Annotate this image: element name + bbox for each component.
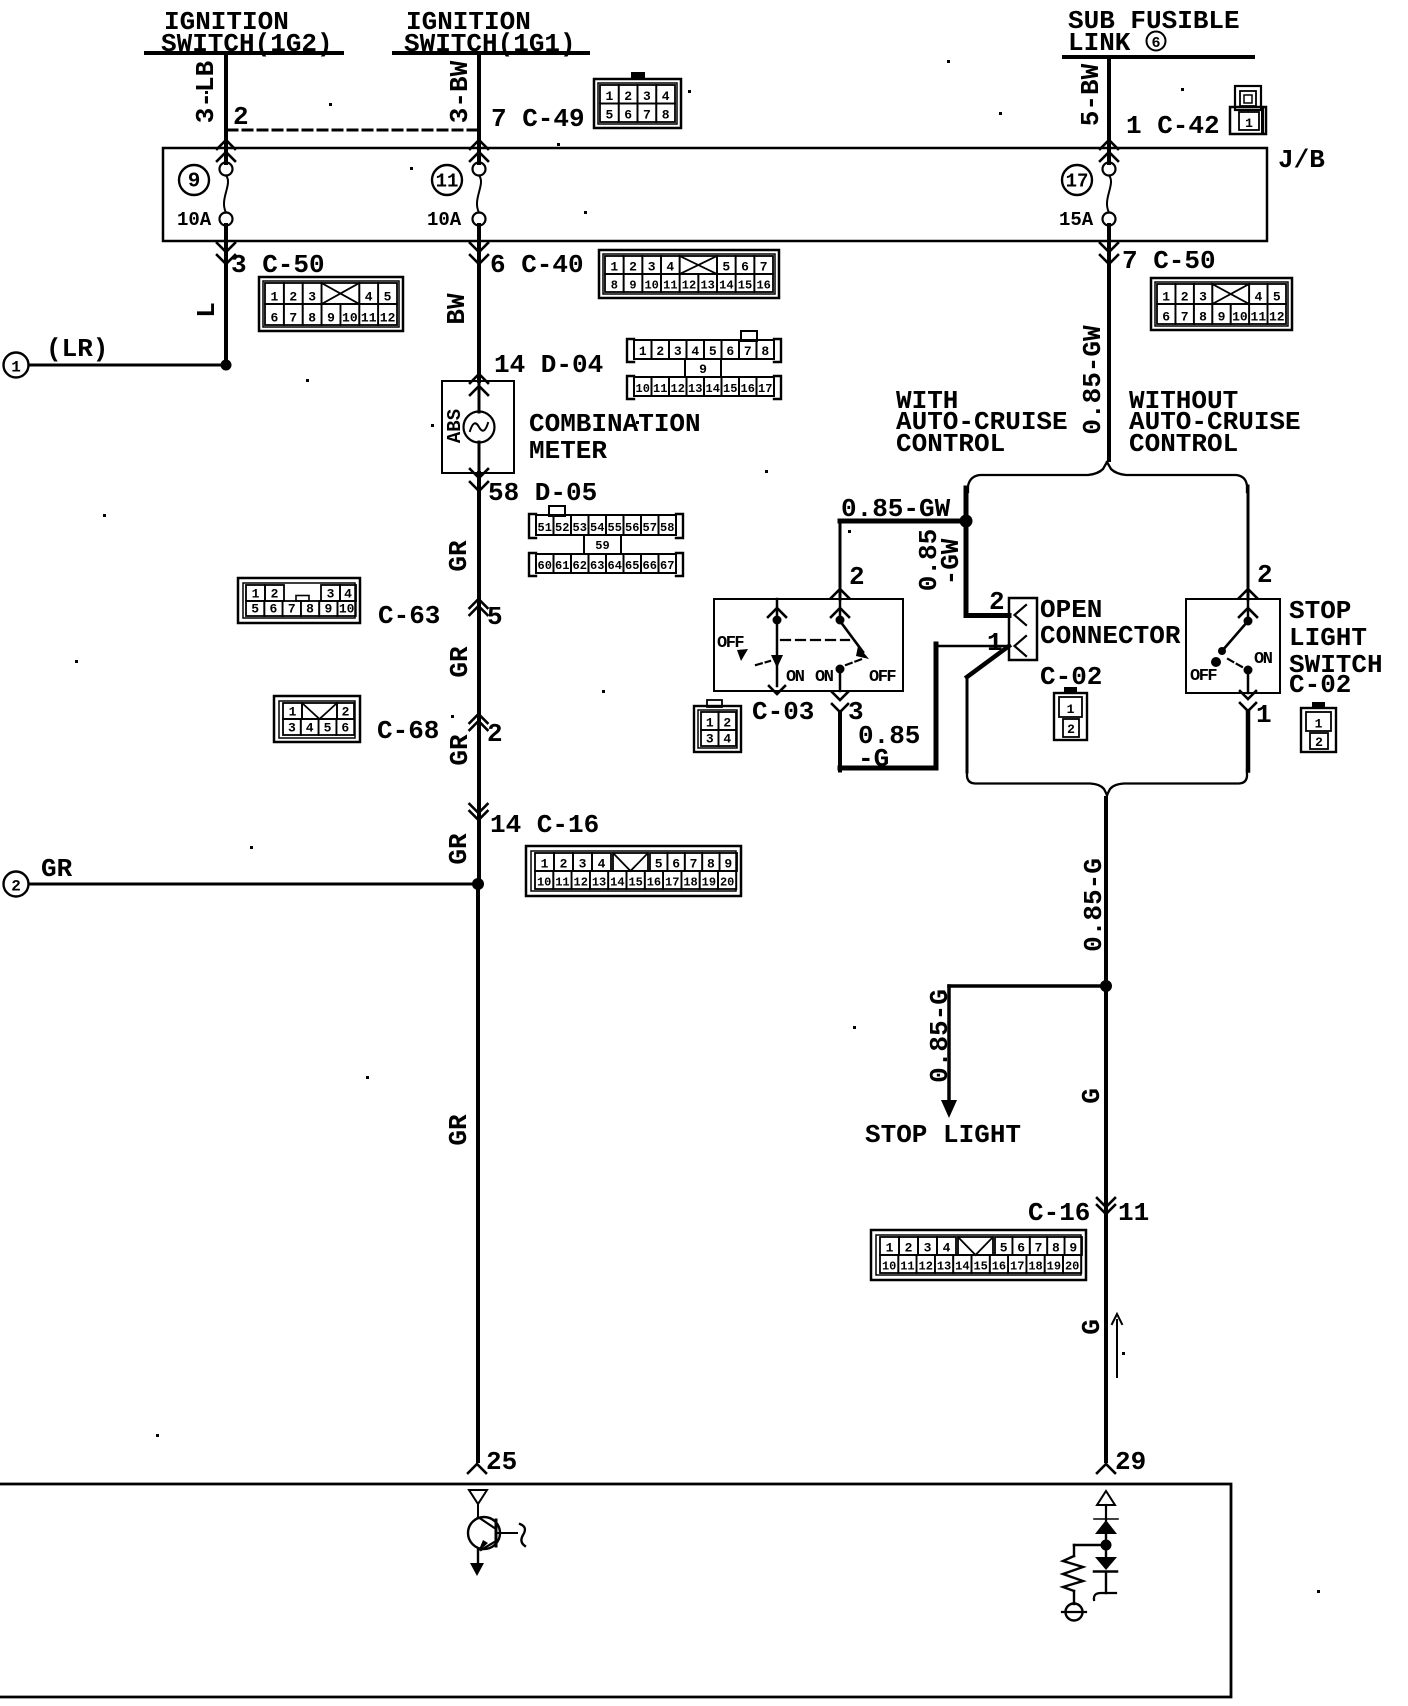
svg-text:19: 19: [702, 876, 716, 890]
svg-text:J/B: J/B: [1278, 145, 1325, 175]
svg-text:4: 4: [344, 587, 352, 602]
svg-text:10: 10: [342, 311, 358, 326]
svg-text:65: 65: [625, 559, 639, 573]
svg-text:ON: ON: [1254, 650, 1273, 669]
svg-text:8: 8: [611, 279, 618, 293]
svg-text:8: 8: [761, 344, 769, 359]
svg-text:17: 17: [665, 876, 679, 890]
svg-text:(LR): (LR): [46, 334, 108, 364]
svg-text:12: 12: [574, 876, 588, 890]
svg-text:7 C-50: 7 C-50: [1122, 246, 1216, 276]
svg-text:9: 9: [699, 362, 707, 377]
svg-text:52: 52: [555, 521, 569, 535]
svg-text:7: 7: [289, 311, 297, 326]
svg-text:GR: GR: [41, 854, 73, 884]
svg-text:2: 2: [11, 878, 21, 896]
svg-text:2: 2: [624, 89, 632, 104]
svg-text:16: 16: [647, 876, 661, 890]
svg-text:14 D-04: 14 D-04: [494, 350, 603, 380]
svg-text:1: 1: [1067, 702, 1075, 717]
svg-text:51: 51: [538, 521, 552, 535]
svg-text:10: 10: [537, 876, 551, 890]
svg-text:9: 9: [327, 311, 335, 326]
svg-text:2: 2: [989, 587, 1005, 617]
svg-text:3: 3: [308, 290, 316, 305]
svg-text:2: 2: [289, 290, 297, 305]
svg-text:5: 5: [251, 602, 259, 617]
svg-text:9: 9: [629, 279, 636, 293]
svg-text:2: 2: [1315, 735, 1323, 750]
svg-text:56: 56: [625, 521, 639, 535]
svg-text:6: 6: [726, 344, 734, 359]
svg-text:1: 1: [1256, 700, 1272, 730]
svg-text:1: 1: [886, 1241, 894, 1256]
svg-text:ON: ON: [815, 668, 834, 687]
svg-text:16: 16: [756, 279, 770, 293]
svg-text:4: 4: [666, 260, 674, 275]
svg-text:0.85-G: 0.85-G: [925, 989, 955, 1083]
svg-text:57: 57: [643, 521, 657, 535]
svg-text:10: 10: [339, 602, 355, 617]
svg-text:1: 1: [1315, 717, 1323, 732]
svg-text:4: 4: [691, 344, 699, 359]
svg-text:CONTROL: CONTROL: [896, 429, 1005, 459]
svg-text:64: 64: [608, 559, 622, 573]
svg-text:13: 13: [688, 382, 702, 396]
svg-text:1: 1: [1245, 116, 1253, 131]
svg-text:14: 14: [610, 876, 624, 890]
svg-text:L: L: [192, 302, 222, 318]
svg-text:C-63: C-63: [378, 601, 440, 631]
svg-text:53: 53: [573, 521, 587, 535]
svg-text:2: 2: [560, 857, 568, 872]
svg-text:5: 5: [1273, 290, 1281, 305]
svg-text:-GW: -GW: [936, 538, 966, 585]
svg-text:16: 16: [741, 382, 755, 396]
svg-text:CONNECTOR: CONNECTOR: [1040, 621, 1181, 651]
svg-text:17: 17: [1066, 171, 1089, 193]
svg-text:GR: GR: [445, 734, 475, 766]
svg-text:4: 4: [943, 1241, 951, 1256]
svg-text:STOP LIGHT: STOP LIGHT: [865, 1120, 1021, 1150]
svg-text:OFF: OFF: [717, 634, 744, 653]
svg-text:8: 8: [308, 311, 316, 326]
svg-text:58: 58: [660, 521, 674, 535]
svg-text:59: 59: [595, 539, 609, 553]
svg-text:6: 6: [741, 260, 749, 275]
svg-text:3 C-50: 3 C-50: [231, 250, 325, 280]
svg-text:1: 1: [271, 290, 279, 305]
svg-text:13: 13: [592, 876, 606, 890]
svg-text:4: 4: [365, 290, 373, 305]
svg-text:4: 4: [1254, 290, 1262, 305]
svg-text:STOP: STOP: [1289, 596, 1351, 626]
svg-text:25: 25: [486, 1447, 517, 1477]
svg-text:1: 1: [541, 857, 549, 872]
svg-text:5: 5: [384, 290, 392, 305]
svg-text:19: 19: [1047, 1260, 1061, 1274]
svg-text:7: 7: [643, 108, 651, 123]
svg-text:GR: GR: [444, 540, 474, 572]
svg-text:4: 4: [306, 721, 314, 736]
svg-text:GR: GR: [445, 646, 475, 678]
svg-text:54: 54: [590, 521, 604, 535]
svg-text:15: 15: [723, 382, 737, 396]
svg-text:12: 12: [682, 279, 696, 293]
svg-text:20: 20: [1065, 1260, 1079, 1274]
svg-text:ON: ON: [786, 668, 805, 687]
svg-text:4: 4: [662, 89, 670, 104]
svg-text:66: 66: [643, 559, 657, 573]
svg-text:11: 11: [436, 171, 459, 193]
svg-text:1: 1: [11, 359, 21, 377]
svg-text:5: 5: [709, 344, 717, 359]
svg-text:18: 18: [1028, 1260, 1042, 1274]
svg-text:7: 7: [1181, 310, 1189, 325]
svg-text:2: 2: [1067, 722, 1075, 737]
svg-text:5: 5: [1000, 1241, 1008, 1256]
svg-text:BW: BW: [442, 293, 472, 325]
svg-text:C-68: C-68: [377, 716, 439, 746]
svg-text:15A: 15A: [1059, 209, 1094, 231]
svg-text:2: 2: [1257, 560, 1273, 590]
svg-text:61: 61: [555, 559, 569, 573]
svg-text:62: 62: [573, 559, 587, 573]
svg-text:12: 12: [380, 311, 396, 326]
svg-text:OFF: OFF: [1190, 667, 1217, 686]
svg-text:3: 3: [579, 857, 587, 872]
svg-text:C-03: C-03: [752, 697, 814, 727]
svg-text:3-BW: 3-BW: [445, 60, 475, 123]
svg-text:COMBINATION: COMBINATION: [529, 409, 701, 439]
svg-text:GR: GR: [444, 833, 474, 865]
svg-text:6: 6: [271, 311, 279, 326]
svg-text:GR: GR: [444, 1114, 474, 1146]
svg-text:4: 4: [723, 732, 731, 747]
svg-text:C-02: C-02: [1289, 670, 1351, 700]
svg-text:6: 6: [1162, 310, 1170, 325]
svg-text:10A: 10A: [177, 209, 212, 231]
svg-text:14: 14: [719, 279, 733, 293]
svg-text:1: 1: [610, 260, 618, 275]
svg-text:12: 12: [919, 1260, 933, 1274]
svg-text:11: 11: [361, 311, 377, 326]
svg-text:LIGHT: LIGHT: [1289, 623, 1367, 653]
svg-text:5-BW: 5-BW: [1076, 63, 1106, 126]
svg-text:5: 5: [655, 857, 663, 872]
svg-text:0.85-G: 0.85-G: [1079, 858, 1109, 952]
svg-text:4: 4: [598, 857, 606, 872]
svg-text:7: 7: [690, 857, 698, 872]
svg-text:18: 18: [683, 876, 697, 890]
svg-text:CONTROL: CONTROL: [1129, 429, 1238, 459]
svg-text:11: 11: [663, 279, 677, 293]
svg-text:2: 2: [233, 102, 249, 132]
svg-text:9: 9: [324, 602, 332, 617]
svg-text:7: 7: [288, 602, 296, 617]
svg-text:3: 3: [327, 587, 335, 602]
svg-text:13: 13: [700, 279, 714, 293]
svg-text:11: 11: [1251, 310, 1267, 325]
svg-text:7 C-49: 7 C-49: [491, 104, 585, 134]
svg-text:1: 1: [252, 587, 260, 602]
svg-text:55: 55: [608, 521, 622, 535]
svg-text:2: 2: [342, 705, 350, 720]
svg-text:2: 2: [656, 344, 664, 359]
svg-text:11: 11: [1118, 1198, 1149, 1228]
svg-text:9: 9: [188, 171, 201, 194]
svg-text:8: 8: [1199, 310, 1207, 325]
svg-text:0.85-GW: 0.85-GW: [841, 494, 951, 524]
svg-text:-G: -G: [858, 744, 889, 774]
svg-text:METER: METER: [529, 436, 607, 466]
svg-text:17: 17: [1010, 1260, 1024, 1274]
svg-text:2: 2: [487, 719, 503, 749]
svg-text:13: 13: [937, 1260, 951, 1274]
svg-text:10: 10: [1232, 310, 1248, 325]
svg-text:1 C-42: 1 C-42: [1126, 111, 1220, 141]
svg-text:15: 15: [738, 279, 752, 293]
svg-text:11: 11: [653, 382, 667, 396]
svg-text:17: 17: [758, 382, 772, 396]
svg-text:6: 6: [624, 108, 632, 123]
svg-text:8: 8: [707, 857, 715, 872]
svg-text:5: 5: [487, 602, 503, 632]
svg-text:9: 9: [1218, 310, 1226, 325]
svg-text:2: 2: [271, 587, 279, 602]
svg-text:7: 7: [1035, 1241, 1043, 1256]
svg-text:9: 9: [1069, 1241, 1077, 1256]
svg-text:2: 2: [629, 260, 637, 275]
svg-text:1: 1: [605, 89, 613, 104]
svg-text:58 D-05: 58 D-05: [488, 478, 597, 508]
svg-text:9: 9: [724, 857, 732, 872]
svg-text:5: 5: [722, 260, 730, 275]
svg-text:3: 3: [288, 721, 296, 736]
svg-text:1: 1: [706, 716, 714, 731]
svg-text:G: G: [1077, 1088, 1107, 1104]
svg-text:15: 15: [973, 1260, 987, 1274]
svg-text:20: 20: [720, 876, 734, 890]
svg-text:6: 6: [1017, 1241, 1025, 1256]
svg-text:63: 63: [590, 559, 604, 573]
svg-text:2: 2: [723, 716, 731, 731]
svg-text:8: 8: [306, 602, 314, 617]
svg-text:6: 6: [341, 721, 349, 736]
svg-text:3: 3: [924, 1241, 932, 1256]
svg-text:12: 12: [1269, 310, 1285, 325]
svg-text:3: 3: [1199, 290, 1207, 305]
svg-text:C-16: C-16: [1028, 1198, 1090, 1228]
svg-text:5: 5: [605, 108, 613, 123]
svg-text:14: 14: [706, 382, 720, 396]
svg-text:6: 6: [672, 857, 680, 872]
svg-text:1: 1: [1162, 290, 1170, 305]
svg-text:7: 7: [760, 260, 768, 275]
svg-text:3: 3: [706, 732, 714, 747]
svg-text:LINK: LINK: [1068, 28, 1131, 58]
svg-text:0.85-GW: 0.85-GW: [1078, 325, 1108, 435]
svg-text:6: 6: [1151, 35, 1160, 52]
svg-text:3: 3: [674, 344, 682, 359]
svg-text:10: 10: [636, 382, 650, 396]
svg-text:7: 7: [744, 344, 752, 359]
svg-text:14 C-16: 14 C-16: [490, 810, 599, 840]
svg-text:12: 12: [671, 382, 685, 396]
svg-text:6 C-40: 6 C-40: [490, 250, 584, 280]
svg-text:3: 3: [643, 89, 651, 104]
svg-text:OFF: OFF: [869, 668, 896, 687]
svg-text:10: 10: [882, 1260, 896, 1274]
svg-text:60: 60: [538, 559, 552, 573]
svg-text:1: 1: [639, 344, 647, 359]
svg-text:G: G: [1077, 1319, 1107, 1335]
svg-text:67: 67: [660, 559, 674, 573]
svg-text:2: 2: [849, 562, 865, 592]
svg-text:8: 8: [1052, 1241, 1060, 1256]
svg-text:15: 15: [628, 876, 642, 890]
svg-text:11: 11: [555, 876, 569, 890]
svg-text:5: 5: [324, 721, 332, 736]
svg-text:11: 11: [900, 1260, 914, 1274]
svg-text:1: 1: [289, 705, 297, 720]
svg-text:6: 6: [270, 602, 278, 617]
svg-text:2: 2: [1181, 290, 1189, 305]
svg-text:10A: 10A: [427, 209, 462, 231]
svg-text:10: 10: [644, 279, 658, 293]
svg-text:3: 3: [648, 260, 656, 275]
svg-text:8: 8: [662, 108, 670, 123]
svg-text:14: 14: [955, 1260, 969, 1274]
svg-text:29: 29: [1115, 1447, 1146, 1477]
svg-text:16: 16: [992, 1260, 1006, 1274]
svg-text:2: 2: [905, 1241, 913, 1256]
